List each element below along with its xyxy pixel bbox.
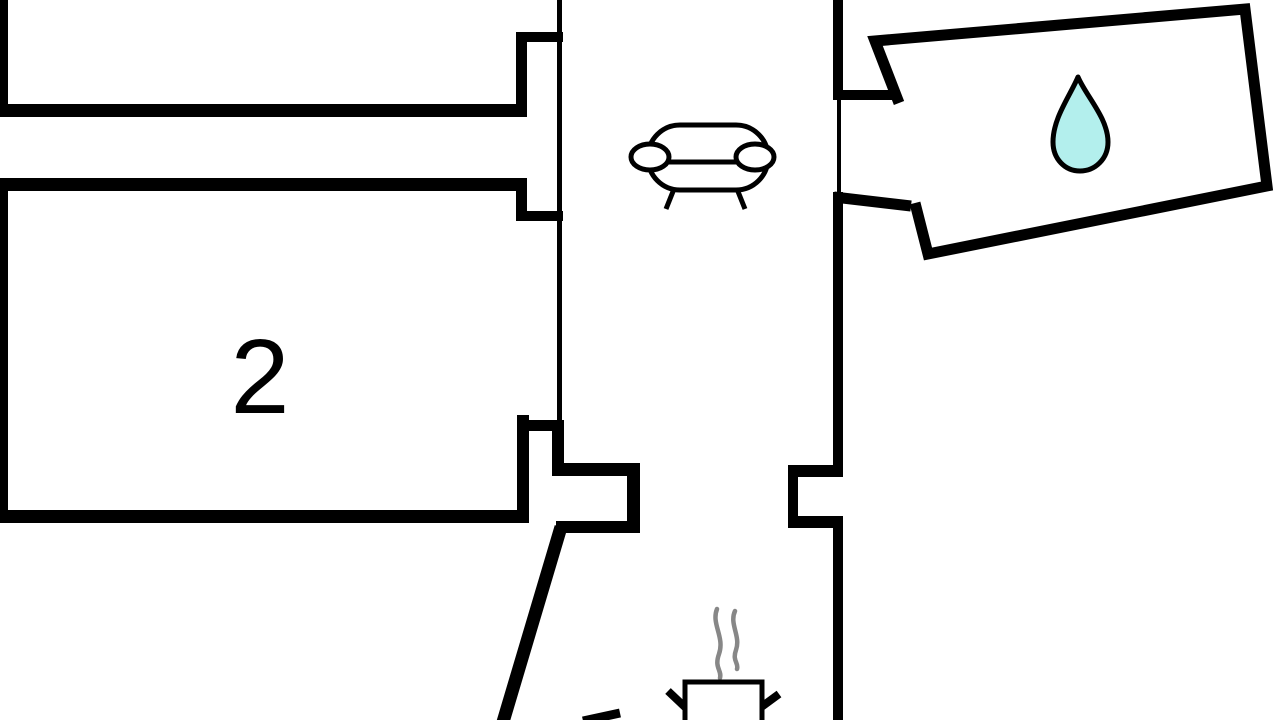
hallway-east-lower-wall	[833, 516, 843, 720]
room-2-top-right-cap	[516, 211, 563, 221]
hallway-east-walls	[788, 0, 911, 720]
hallway-west-thin-wall	[557, 0, 562, 425]
sofa-icon	[631, 125, 774, 209]
floor-plan: 2	[0, 0, 1280, 720]
room-1-walls	[0, 0, 563, 117]
room-1-bottom-wall	[0, 104, 527, 117]
steam-left	[715, 609, 720, 678]
room-2-bottom-wall	[0, 510, 529, 523]
room-1-left-wall	[0, 0, 8, 117]
cooking-pot-icon	[668, 609, 779, 720]
floor-plan-drawing: 2	[0, 0, 1280, 720]
hallway-east-top-wall	[833, 0, 843, 100]
west-doorway-notch-top	[552, 463, 640, 476]
room-1-wall-jog	[516, 32, 527, 117]
room-2-right-wall	[517, 415, 529, 523]
hallway-west-wall-segment	[552, 420, 564, 470]
steam-icon	[715, 609, 737, 678]
sofa-left-armrest	[631, 144, 669, 170]
bathroom-door-bottom-stub	[834, 197, 911, 206]
room-2-top-wall	[0, 178, 527, 191]
room-1-wall-cap	[516, 32, 563, 42]
bathroom-door-top-stub	[833, 90, 895, 100]
bottom-edge-wall-fragment	[583, 713, 620, 720]
sofa-right-armrest	[736, 144, 774, 170]
west-doorway-notch-bottom	[556, 521, 640, 533]
room-2-left-wall	[0, 178, 8, 523]
water-drop-icon	[1053, 77, 1108, 171]
hallway-east-wall	[833, 192, 843, 477]
room-2-label: 2	[231, 318, 290, 436]
steam-right	[733, 611, 737, 669]
diagonal-wall	[503, 527, 561, 720]
hallway-east-thin-wall	[837, 100, 841, 192]
water-drop-shape	[1053, 77, 1108, 171]
sofa-left-leg	[666, 189, 674, 209]
pot-body	[685, 682, 762, 720]
